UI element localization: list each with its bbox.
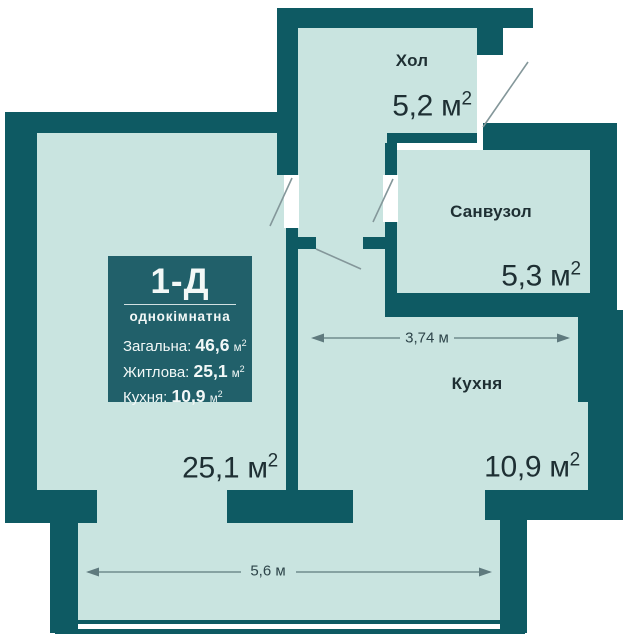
area-unit: м <box>549 451 569 484</box>
floor-plan-graphic <box>0 0 638 640</box>
area-unit: м <box>550 260 570 293</box>
area-unit-sup: 2 <box>461 89 471 110</box>
plan-stats: Загальна: 46,6 м2 Житлова: 25,1 м2 Кухня… <box>108 336 252 406</box>
kitchen-width-dimension: 3,74 м <box>405 330 449 347</box>
stat-row-living: Житлова: 25,1 м2 <box>123 362 252 381</box>
kitchen-area-label: 10,9 м2 <box>484 450 580 485</box>
bathroom-door-opening <box>383 175 398 222</box>
living-area-label: 25,1 м2 <box>182 451 278 486</box>
entry-door-swing <box>483 62 528 127</box>
bathroom-area-label: 5,3 м2 <box>501 259 580 294</box>
area-unit: м <box>247 452 267 485</box>
area-unit-sup: 2 <box>570 259 580 280</box>
balcony-width-dimension: 5,6 м <box>250 563 285 580</box>
stat-unit: м2 <box>210 393 223 405</box>
stat-row-kitchen: Кухня: 10,9 м2 <box>123 387 252 406</box>
hall-room-name: Хол <box>396 51 428 71</box>
hall-area-value: 5,2 <box>392 90 433 123</box>
bathroom-room-name: Санвузол <box>450 202 532 222</box>
bathroom-area-value: 5,3 <box>501 260 542 293</box>
plan-type: однокімнатна <box>108 309 252 324</box>
living-room-door-opening <box>284 175 299 228</box>
kitchen-area-value: 10,9 <box>484 451 541 484</box>
stat-value: 25,1 <box>194 361 228 381</box>
stat-label: Житлова: <box>123 364 189 381</box>
kitchen-room-name: Кухня <box>452 374 503 394</box>
stat-unit: м2 <box>232 368 245 380</box>
stat-label: Кухня: <box>123 389 167 406</box>
plan-code: 1-Д <box>108 264 252 301</box>
stat-value: 10,9 <box>171 386 205 406</box>
area-unit-sup: 2 <box>570 450 580 471</box>
stat-unit: м2 <box>234 342 247 354</box>
floor-plan-page: { "colors": { "wall": "#0e5a63", "room":… <box>0 0 638 640</box>
area-unit-sup: 2 <box>268 451 278 472</box>
stat-label: Загальна: <box>123 338 191 355</box>
area-unit: м <box>441 90 461 123</box>
living-area-value: 25,1 <box>182 452 239 485</box>
stat-row-total: Загальна: 46,6 м2 <box>123 336 252 355</box>
hall-area-label: 5,2 м2 <box>392 89 471 124</box>
stat-value: 46,6 <box>195 335 229 355</box>
plan-info-box: 1-Д однокімнатна Загальна: 46,6 м2 Житло… <box>108 256 252 402</box>
info-divider <box>124 304 236 305</box>
